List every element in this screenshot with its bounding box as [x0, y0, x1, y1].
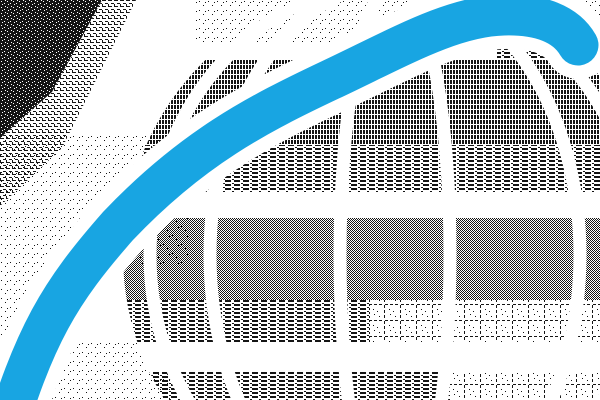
globe-band-dense	[120, 218, 600, 300]
globe-swoosh-graphic	[0, 0, 600, 400]
globe-parallel-lower	[120, 342, 600, 372]
logo-canvas	[0, 0, 600, 400]
globe-band-bottom-right	[450, 372, 600, 400]
